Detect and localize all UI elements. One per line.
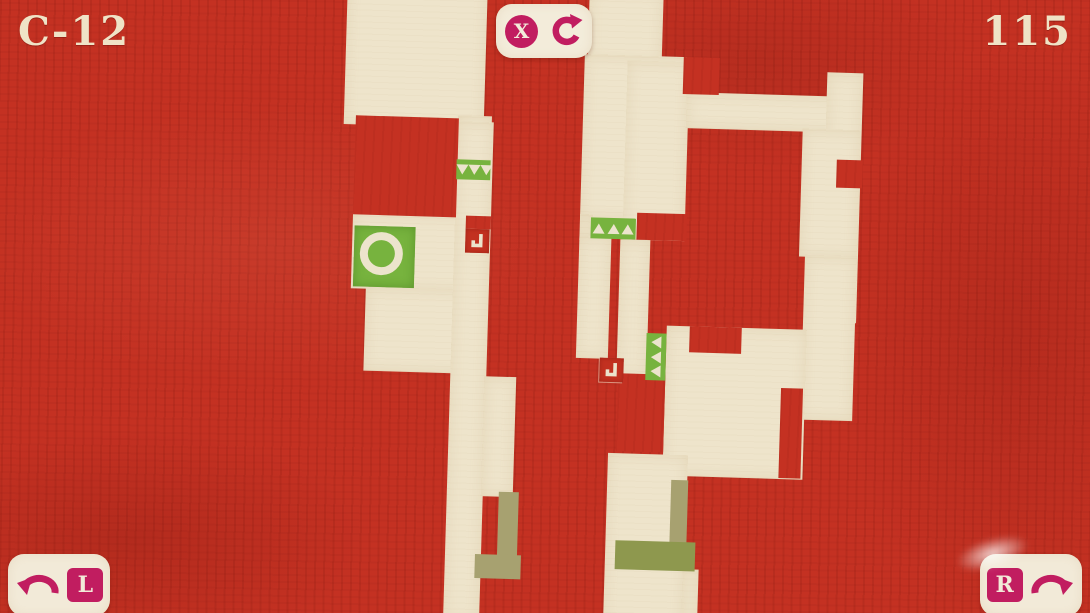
board-red-block	[836, 160, 863, 189]
board-tile	[800, 255, 857, 421]
rotate-counterclockwise-arrow-icon	[15, 567, 61, 603]
board-red-block	[636, 213, 687, 241]
board-red-block	[683, 57, 720, 95]
spike-triangle-down-icon	[468, 165, 480, 175]
spike-band-left	[645, 333, 666, 381]
spike-triangle-left-icon	[650, 365, 660, 377]
rotate-left-key-label: L	[67, 568, 103, 602]
board-red-block	[466, 216, 491, 230]
x-undo-button[interactable]: X	[505, 15, 538, 48]
spike-triangle-up-icon	[607, 223, 619, 233]
spike-triangle-left-icon	[651, 351, 661, 363]
spike-band-up	[590, 217, 636, 239]
board-tile	[799, 129, 861, 259]
board-tile	[344, 0, 488, 128]
board-red-block	[616, 373, 665, 452]
board-tile	[576, 236, 612, 359]
rotate-clockwise-arrow-icon	[1029, 567, 1075, 603]
spike-triangle-left-icon	[651, 336, 661, 348]
rotate-right-button[interactable]: R	[980, 554, 1082, 613]
olive-tile	[669, 480, 688, 544]
olive-tile	[474, 554, 521, 579]
player-ring-icon	[359, 231, 403, 275]
rotate-left-button[interactable]: L	[8, 554, 110, 613]
spike-band-down	[456, 159, 491, 180]
board-red-block	[778, 388, 803, 479]
spike-triangle-down-icon	[456, 164, 468, 174]
top-menu-pill: X	[496, 4, 592, 58]
rotate-restart-icon[interactable]	[547, 13, 583, 49]
rotation-anchor-icon	[465, 229, 490, 254]
board-red-block	[689, 326, 742, 354]
spike-triangle-up-icon	[621, 224, 633, 234]
olive-tile	[497, 492, 519, 558]
level-label: C-12	[18, 8, 130, 55]
spike-triangle-down-icon	[480, 165, 492, 175]
rotation-anchor-icon	[599, 358, 624, 383]
move-counter: 115	[983, 8, 1073, 55]
game-screen: C-12 115 X L R	[0, 0, 1090, 613]
board-red-block	[353, 115, 459, 217]
spike-triangle-up-icon	[593, 223, 605, 233]
player-piece	[353, 225, 416, 288]
board-layer	[0, 0, 1090, 613]
olive-tile	[615, 540, 696, 571]
board-tile	[681, 569, 699, 613]
rotate-right-key-label: R	[987, 568, 1023, 602]
board-tile	[481, 376, 517, 497]
